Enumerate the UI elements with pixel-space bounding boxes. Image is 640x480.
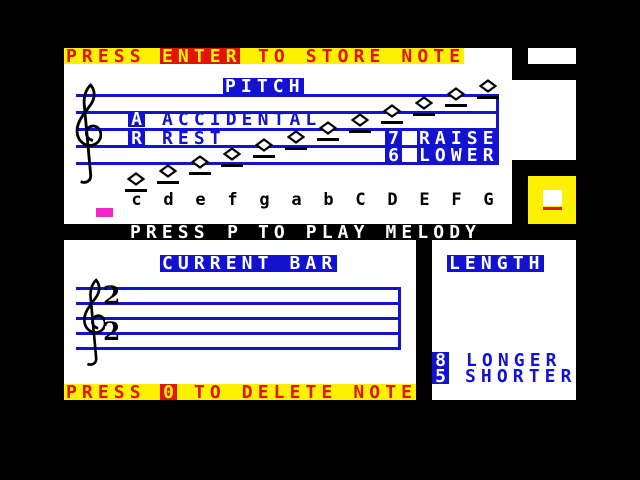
note-ledger-dash [317, 138, 339, 141]
enter-key-label: ENTER [162, 48, 242, 65]
pitch-title: PITCH [225, 78, 305, 95]
decor-block-top-1 [464, 48, 512, 64]
note-letter: d [160, 192, 177, 208]
staff-line [76, 347, 401, 350]
note-head [479, 79, 497, 93]
note-letter: G [480, 192, 497, 208]
play-prefix: PRESS [130, 224, 210, 241]
note-letter: g [256, 192, 273, 208]
staff-line [76, 302, 401, 305]
note-letter: a [288, 192, 305, 208]
note-ledger-dash [221, 164, 243, 167]
shorter-label: SHORTER [465, 368, 577, 385]
lower-label: LOWER [419, 147, 499, 164]
note-ledger-dash [445, 104, 467, 107]
staff-barline [398, 287, 401, 350]
note-letter: E [416, 192, 433, 208]
note-ledger-dash [413, 113, 435, 116]
accidental-key[interactable]: A [128, 111, 145, 127]
current-bar-title: CURRENT BAR [162, 255, 337, 272]
note-letter: b [320, 192, 337, 208]
note-letter: D [384, 192, 401, 208]
note-head [351, 113, 369, 127]
staff-line [76, 317, 401, 320]
rest-key[interactable]: R [128, 130, 145, 146]
store-note-suffix: TO STORE NOTE [258, 48, 465, 65]
current-bar-title-box: CURRENT BAR [160, 255, 337, 272]
note-head [255, 138, 273, 152]
note-letter: C [352, 192, 369, 208]
treble-clef-icon [64, 78, 102, 184]
note-letter: F [448, 192, 465, 208]
note-ledger-dash [285, 147, 307, 150]
note-head [447, 87, 465, 101]
lower-key[interactable]: 6 [385, 147, 402, 163]
raise-key[interactable]: 7 [385, 130, 402, 146]
play-suffix: TO PLAY MELODY [258, 224, 481, 241]
note-ledger-dash [253, 155, 275, 158]
position-cursor [96, 208, 113, 217]
decor-block-right [512, 80, 576, 160]
note-letter: f [224, 192, 241, 208]
raise-label-box: RAISE [417, 130, 498, 146]
delete-key[interactable]: 0 [160, 384, 177, 400]
decor-block-top-2 [528, 48, 576, 64]
time-signature-top: 2 [103, 285, 120, 307]
length-note-glyph [543, 190, 562, 206]
pitch-title-box: PITCH [223, 78, 304, 95]
accidental-label: ACCIDENTAL [162, 111, 321, 128]
length-note-underline [543, 207, 562, 210]
note-head [287, 130, 305, 144]
note-ledger-dash [349, 130, 371, 133]
note-head [127, 172, 145, 186]
note-letter: e [192, 192, 209, 208]
staff-line [76, 287, 401, 290]
zx-spectrum-screen: PRESS ENTER TO STORE NOTE PITCH A ACCIDE… [0, 0, 640, 480]
delete-prefix: PRESS [66, 384, 146, 401]
note-ledger-dash [477, 96, 499, 99]
length-title: LENGTH [449, 255, 545, 272]
store-note-prefix: PRESS [66, 48, 146, 65]
note-length-indicator [528, 176, 576, 224]
time-signature-bottom: 2 [103, 321, 120, 343]
note-head [319, 121, 337, 135]
treble-clef-icon-small [74, 274, 105, 366]
note-ledger-dash [157, 181, 179, 184]
rest-label: REST [162, 130, 226, 147]
note-ledger-dash [381, 121, 403, 124]
shorter-key[interactable]: 5 [432, 368, 449, 384]
enter-key[interactable]: ENTER [160, 48, 240, 64]
play-key[interactable]: P [224, 224, 241, 241]
note-head [191, 155, 209, 169]
staff-line [76, 332, 401, 335]
note-letter: c [128, 192, 145, 208]
length-title-box: LENGTH [447, 255, 544, 272]
note-head [383, 104, 401, 118]
lower-label-box: LOWER [417, 147, 498, 163]
note-head [159, 164, 177, 178]
note-ledger-dash [189, 172, 211, 175]
delete-suffix: TO DELETE NOTE [194, 384, 417, 401]
note-head [415, 96, 433, 110]
